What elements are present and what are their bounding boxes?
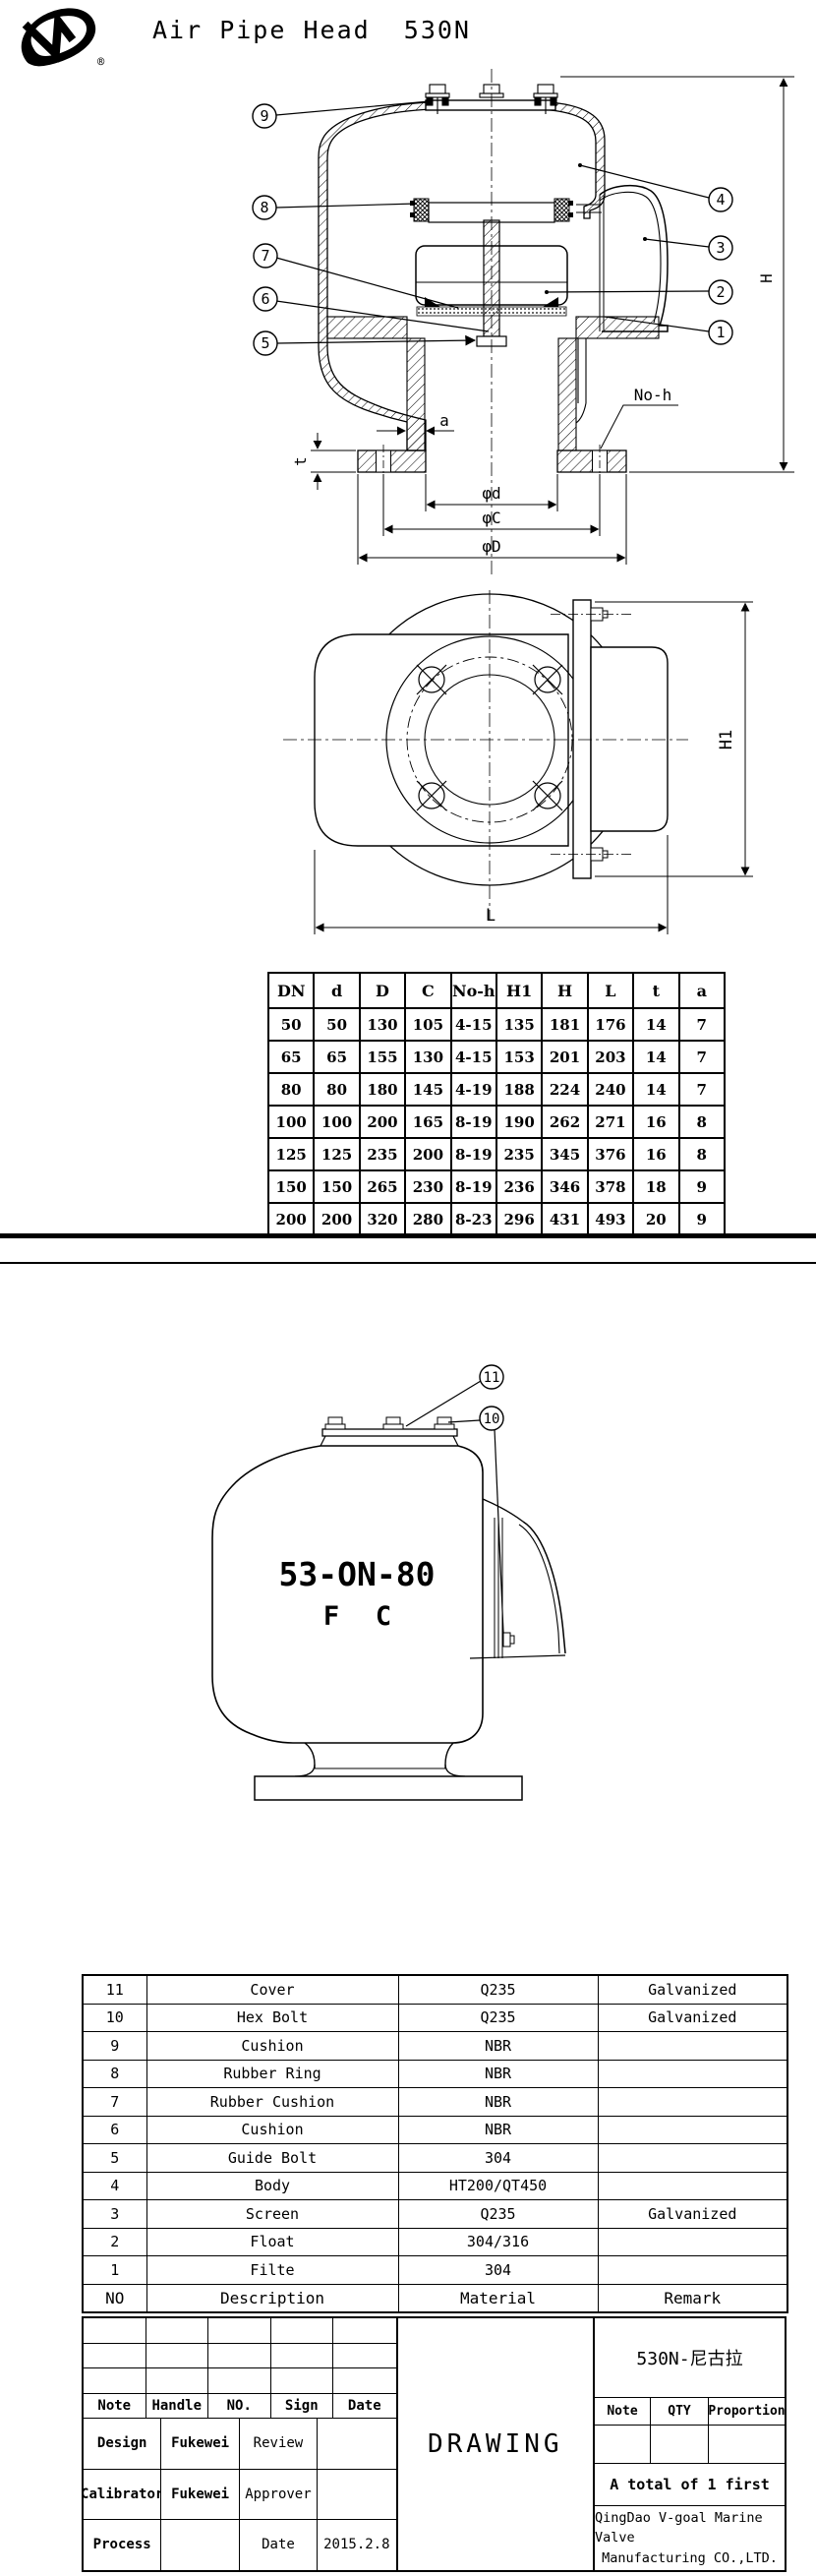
title-block: Note Handle NO. Sign Date Design Fukewei…: [82, 2316, 787, 2572]
parts-table-cell: Galvanized: [598, 2004, 787, 2032]
company-line2: Manufacturing CO.,LTD.: [602, 2548, 778, 2568]
dim-table-cell: 271: [588, 1106, 633, 1138]
parts-table-cell: Q235: [398, 1975, 598, 2004]
dim-table-cell: 165: [405, 1106, 450, 1138]
dim-table-cell: 176: [588, 1008, 633, 1041]
parts-table-cell: Q235: [398, 2200, 598, 2229]
parts-table-row: 11CoverQ235Galvanized: [83, 1975, 787, 2004]
callout-5: 5: [261, 334, 269, 352]
logo-swoosh: [14, 2, 102, 71]
parts-table-cell: [598, 2172, 787, 2200]
parts-table-cell: Q235: [398, 2004, 598, 2032]
parts-table-cell: 8: [83, 2060, 146, 2088]
review-label: Review: [240, 2419, 318, 2469]
top-view-drawing: L H1: [167, 585, 816, 944]
marking-c: C: [376, 1601, 391, 1632]
dim-table-cell: 125: [268, 1138, 314, 1170]
dim-table-cell: 7: [679, 1073, 725, 1106]
body-side: [212, 1446, 483, 1743]
parts-table-row: 5Guide Bolt304: [83, 2144, 787, 2173]
parts-table-header-cell: Remark: [598, 2284, 787, 2312]
qty-label: QTY: [651, 2398, 709, 2425]
sheet-total: A total of 1 first: [595, 2464, 785, 2506]
dim-table-cell: 18: [633, 1170, 678, 1203]
dim-table-cell: 16: [633, 1138, 678, 1170]
dim-table-row: 65651551304-15153201203147: [268, 1041, 725, 1073]
dim-table-cell: 14: [633, 1073, 678, 1106]
sheet-divider-thin: [0, 1262, 816, 1264]
parts-table-cell: Galvanized: [598, 2200, 787, 2229]
parts-table-cell: 4: [83, 2172, 146, 2200]
parts-table-cell: 3: [83, 2200, 146, 2229]
dim-a: a: [439, 411, 449, 430]
design-row: Design Fukewei Review: [84, 2419, 396, 2469]
dim-table-cell: 80: [314, 1073, 359, 1106]
dim-table-cell: 235: [360, 1138, 405, 1170]
dim-table-cell: 200: [405, 1138, 450, 1170]
parts-table-cell: 7: [83, 2088, 146, 2117]
model-number: 530N-尼古拉: [595, 2318, 785, 2398]
parts-table-row: 10Hex BoltQ235Galvanized: [83, 2004, 787, 2032]
dim-table-row: 1251252352008-19235345376168: [268, 1138, 725, 1170]
dim-table-cell: 7: [679, 1041, 725, 1073]
parts-table-cell: Guide Bolt: [146, 2144, 398, 2173]
parts-table-cell: [598, 2144, 787, 2173]
title-block-right: 530N-尼古拉 Note QTY Proportion A total of …: [595, 2318, 785, 2570]
parts-table-cell: NBR: [398, 2116, 598, 2144]
company-line1: QingDao V-goal Marine Valve: [595, 2508, 785, 2548]
dim-table-header-cell: a: [679, 973, 725, 1008]
hood-top-view: [591, 647, 668, 831]
dim-table-header-cell: H: [542, 973, 587, 1008]
dim-table-row: 1001002001658-19190262271168: [268, 1106, 725, 1138]
parts-table-cell: [598, 2088, 787, 2117]
pipe-wall-right: [558, 338, 576, 450]
dim-table-cell: 4-15: [451, 1008, 496, 1041]
pipe-wall-left: [407, 338, 425, 450]
dim-table-cell: 235: [496, 1138, 542, 1170]
parts-table-cell: 6: [83, 2116, 146, 2144]
dim-table-cell: 8-19: [451, 1106, 496, 1138]
dim-phi-d: φd: [482, 484, 500, 503]
handle-label: Handle: [146, 2394, 209, 2420]
dim-phi-D: φD: [482, 537, 500, 556]
parts-table-cell: Cover: [146, 1975, 398, 2004]
hood-side: [470, 1499, 565, 1658]
calibrator-label: Calibrator: [84, 2470, 161, 2520]
note-label: Note: [84, 2394, 146, 2420]
parts-table-row: 2Float304/316: [83, 2228, 787, 2256]
dim-table-cell: 65: [268, 1041, 314, 1073]
dim-phi-c: φC: [482, 509, 500, 527]
dim-table-cell: 9: [679, 1170, 725, 1203]
dim-table-cell: 262: [542, 1106, 587, 1138]
parts-table-cell: Float: [146, 2228, 398, 2256]
title-block-left: Note Handle NO. Sign Date Design Fukewei…: [84, 2318, 398, 2570]
dim-table-row: 2002003202808-23296431493209: [268, 1203, 725, 1235]
dim-table-cell: 9: [679, 1203, 725, 1235]
dim-table-header-cell: d: [314, 973, 359, 1008]
cover-plate-side: [322, 1417, 457, 1436]
dim-table-cell: 7: [679, 1008, 725, 1041]
parts-table-cell: NBR: [398, 2060, 598, 2088]
design-by: Fukewei: [161, 2419, 239, 2469]
parts-table-row: 4BodyHT200/QT450: [83, 2172, 787, 2200]
dim-noh: No-h: [634, 386, 672, 404]
parts-table-row: 9CushionNBR: [83, 2032, 787, 2061]
neck-base: [255, 1743, 522, 1800]
dim-table-row: 1501502652308-19236346378189: [268, 1170, 725, 1203]
dim-table-cell: 236: [496, 1170, 542, 1203]
callout-8: 8: [260, 199, 268, 216]
parts-table-cell: 9: [83, 2032, 146, 2061]
proportion-label: Proportion: [709, 2398, 785, 2425]
review-value: [318, 2419, 395, 2469]
dim-table-cell: 200: [314, 1203, 359, 1235]
dim-table-cell: 320: [360, 1203, 405, 1235]
parts-table-cell: [598, 2116, 787, 2144]
dim-table-cell: 378: [588, 1170, 633, 1203]
flange: [358, 445, 626, 478]
parts-table-cell: Rubber Ring: [146, 2060, 398, 2088]
parts-table-cell: 5: [83, 2144, 146, 2173]
parts-table-header-cell: Material: [398, 2284, 598, 2312]
dim-table-cell: 280: [405, 1203, 450, 1235]
parts-table-cell: Cushion: [146, 2032, 398, 2061]
parts-table-cell: Body: [146, 2172, 398, 2200]
parts-table-cell: 11: [83, 1975, 146, 2004]
callout-3: 3: [716, 239, 725, 257]
parts-table-cell: 1: [83, 2256, 146, 2285]
process-value: [161, 2520, 239, 2570]
dim-t: t: [291, 456, 310, 466]
marking-f: F: [323, 1601, 339, 1632]
dim-table-cell: 155: [360, 1041, 405, 1073]
parts-table-cell: 2: [83, 2228, 146, 2256]
dim-table-cell: 265: [360, 1170, 405, 1203]
dim-table-cell: 20: [633, 1203, 678, 1235]
dim-table-header-row: DNdDCNo-hH1HLta: [268, 973, 725, 1008]
parts-table-header-cell: NO: [83, 2284, 146, 2312]
dim-table-cell: 100: [314, 1106, 359, 1138]
rubber-ring-left: [414, 199, 429, 221]
callout-2: 2: [716, 283, 725, 301]
date2-label: Date: [240, 2520, 318, 2570]
dim-table-cell: 8: [679, 1138, 725, 1170]
dimension-table: DNdDCNo-hH1HLta50501301054-1513518117614…: [267, 972, 726, 1236]
dim-table-cell: 145: [405, 1073, 450, 1106]
sheet-divider-thick: [0, 1233, 816, 1238]
dim-H1: H1: [717, 730, 736, 749]
model-marking: 53-ON-80: [279, 1555, 436, 1593]
dim-table-cell: 180: [360, 1073, 405, 1106]
dim-table-cell: 105: [405, 1008, 450, 1041]
dim-table-cell: 8: [679, 1106, 725, 1138]
approver-value: [318, 2470, 395, 2520]
parts-table-cell: 10: [83, 2004, 146, 2032]
parts-table-cell: Galvanized: [598, 1975, 787, 2004]
dim-table-header-cell: No-h: [451, 973, 496, 1008]
dim-table-header-cell: t: [633, 973, 678, 1008]
dim-table-cell: 188: [496, 1073, 542, 1106]
empty-grid-row: [84, 2368, 396, 2394]
company-name: QingDao V-goal Marine Valve Manufacturin…: [595, 2506, 785, 2570]
empty-grid-row: [84, 2318, 396, 2344]
dim-table-cell: 230: [405, 1170, 450, 1203]
dim-table-cell: 8-19: [451, 1170, 496, 1203]
dim-table-row: 80801801454-19188224240147: [268, 1073, 725, 1106]
dim-table-header-cell: DN: [268, 973, 314, 1008]
dim-table-cell: 190: [496, 1106, 542, 1138]
body-floor-left: [327, 317, 407, 338]
registered-trademark: ®: [97, 55, 104, 69]
dim-table-cell: 14: [633, 1041, 678, 1073]
dim-table-cell: 345: [542, 1138, 587, 1170]
dim-table-header-cell: C: [405, 973, 450, 1008]
dim-table-cell: 200: [268, 1203, 314, 1235]
dim-table-cell: 203: [588, 1041, 633, 1073]
process-row: Process Date 2015.2.8: [84, 2520, 396, 2570]
parts-table-cell: [598, 2032, 787, 2061]
right-skirt: [576, 338, 586, 423]
parts-table-header-row: NODescriptionMaterialRemark: [83, 2284, 787, 2312]
dim-table-cell: 493: [588, 1203, 633, 1235]
dim-table-header-cell: D: [360, 973, 405, 1008]
design-label: Design: [84, 2419, 161, 2469]
parts-table-row: 1Filte304: [83, 2256, 787, 2285]
callout-10: 10: [484, 1411, 500, 1427]
body-outline-top: [315, 634, 568, 846]
parts-table-row: 3ScreenQ235Galvanized: [83, 2200, 787, 2229]
drawing-label: DRAWING: [428, 2429, 563, 2459]
hood-screen: [600, 186, 668, 331]
dim-table-cell: 376: [588, 1138, 633, 1170]
parts-table-cell: Screen: [146, 2200, 398, 2229]
dim-table-cell: 100: [268, 1106, 314, 1138]
dim-table-cell: 181: [542, 1008, 587, 1041]
dim-table-cell: 296: [496, 1203, 542, 1235]
parts-table-cell: HT200/QT450: [398, 2172, 598, 2200]
parts-table-row: 6CushionNBR: [83, 2116, 787, 2144]
dim-table-cell: 135: [496, 1008, 542, 1041]
dim-table-cell: 16: [633, 1106, 678, 1138]
callout-6: 6: [261, 290, 269, 308]
dim-table-cell: 8-19: [451, 1138, 496, 1170]
dim-table-cell: 125: [314, 1138, 359, 1170]
dim-table-header-cell: L: [588, 973, 633, 1008]
parts-table-cell: Filte: [146, 2256, 398, 2285]
parts-table-row: 8Rubber RingNBR: [83, 2060, 787, 2088]
company-logo: [12, 2, 106, 75]
parts-table-cell: Cushion: [146, 2116, 398, 2144]
cross-section-drawing: 9 8 7 6 5 4 3 2 1 a t No-h φd φC φD H: [147, 59, 816, 580]
page-title: Air Pipe Head 530N: [152, 16, 471, 44]
parts-table-cell: Rubber Cushion: [146, 2088, 398, 2117]
date-value: 2015.2.8: [318, 2520, 395, 2570]
rubber-ring-right: [554, 199, 569, 221]
hood-plate-top: [573, 600, 591, 878]
parts-table-cell: [598, 2060, 787, 2088]
empty-grid-row: [595, 2426, 785, 2464]
empty-grid-row: [84, 2344, 396, 2369]
parts-table-cell: [598, 2228, 787, 2256]
dim-table-cell: 130: [405, 1041, 450, 1073]
dim-table-cell: 431: [542, 1203, 587, 1235]
signature-header-row: Note Handle NO. Sign Date: [84, 2394, 396, 2420]
dim-table-cell: 50: [314, 1008, 359, 1041]
calibrator-row: Calibrator Fukewei Approver: [84, 2470, 396, 2520]
dim-table-cell: 346: [542, 1170, 587, 1203]
dim-table-cell: 240: [588, 1073, 633, 1106]
drawing-sheet: { "header": { "title": "Air Pipe Head 53…: [0, 0, 816, 2576]
parts-list-table: 11CoverQ235Galvanized10Hex BoltQ235Galva…: [82, 1974, 788, 2313]
parts-table-cell: 304: [398, 2256, 598, 2285]
dim-L: L: [486, 906, 495, 926]
dim-table-cell: 224: [542, 1073, 587, 1106]
dim-H: H: [757, 273, 776, 283]
parts-table-cell: 304/316: [398, 2228, 598, 2256]
dim-table-cell: 150: [268, 1170, 314, 1203]
dim-table-cell: 153: [496, 1041, 542, 1073]
dim-table-cell: 8-23: [451, 1203, 496, 1235]
dim-table-cell: 14: [633, 1008, 678, 1041]
date-label: Date: [333, 2394, 396, 2420]
callout-1: 1: [716, 324, 725, 341]
sign-label: Sign: [271, 2394, 334, 2420]
parts-table-cell: NBR: [398, 2088, 598, 2117]
dim-table-cell: 201: [542, 1041, 587, 1073]
parts-table-cell: Hex Bolt: [146, 2004, 398, 2032]
dim-table-cell: 4-19: [451, 1073, 496, 1106]
dim-table-cell: 200: [360, 1106, 405, 1138]
callout-4: 4: [716, 191, 725, 209]
note2-label: Note: [595, 2398, 651, 2425]
parts-table-row: 7Rubber CushionNBR: [83, 2088, 787, 2117]
side-view-drawing: 53-ON-80 F C 11 10: [177, 1362, 590, 1805]
note-qty-proportion-row: Note QTY Proportion: [595, 2398, 785, 2426]
no-label: NO.: [208, 2394, 271, 2420]
body-floor-right: [576, 317, 659, 338]
dim-table-row: 50501301054-15135181176147: [268, 1008, 725, 1041]
title-block-center: DRAWING: [398, 2318, 595, 2570]
process-label: Process: [84, 2520, 161, 2570]
dim-table-cell: 65: [314, 1041, 359, 1073]
parts-table-cell: [598, 2256, 787, 2285]
dim-table-cell: 50: [268, 1008, 314, 1041]
dim-table-header-cell: H1: [496, 973, 542, 1008]
parts-table-header-cell: Description: [146, 2284, 398, 2312]
parts-table-cell: NBR: [398, 2032, 598, 2061]
callout-7: 7: [261, 247, 269, 265]
callout-9: 9: [260, 107, 268, 125]
dim-table-cell: 130: [360, 1008, 405, 1041]
approver-label: Approver: [240, 2470, 318, 2520]
dim-table-cell: 4-15: [451, 1041, 496, 1073]
calibrator-by: Fukewei: [161, 2470, 239, 2520]
dim-table-cell: 80: [268, 1073, 314, 1106]
parts-table-cell: 304: [398, 2144, 598, 2173]
dim-table-cell: 150: [314, 1170, 359, 1203]
callout-11: 11: [484, 1370, 500, 1386]
